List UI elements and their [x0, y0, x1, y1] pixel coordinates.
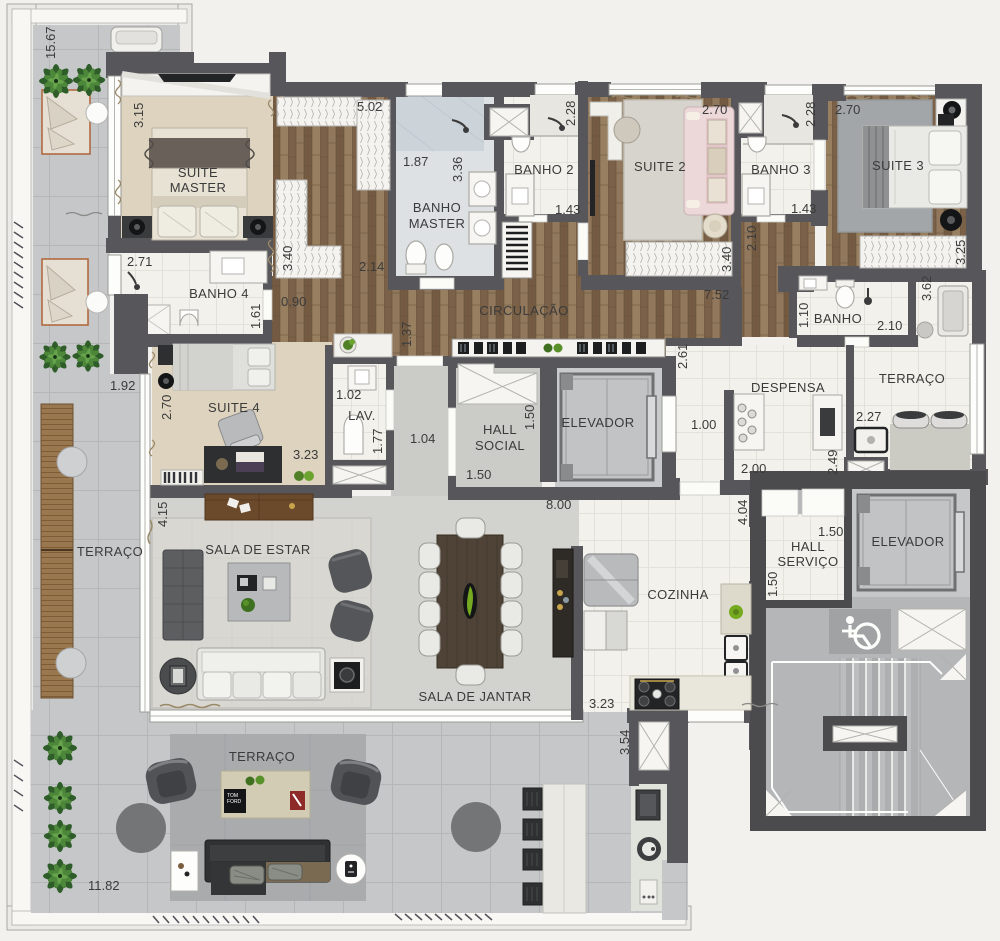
svg-text:1.37: 1.37 — [399, 322, 414, 347]
svg-text:SOCIAL: SOCIAL — [475, 438, 525, 453]
svg-text:COZINHA: COZINHA — [647, 587, 708, 602]
svg-text:2.14: 2.14 — [359, 259, 384, 274]
svg-text:TERRAÇO: TERRAÇO — [77, 544, 143, 559]
svg-text:2.28: 2.28 — [563, 101, 578, 126]
svg-text:1.02: 1.02 — [336, 387, 361, 402]
svg-text:ELEVADOR: ELEVADOR — [871, 534, 944, 549]
svg-text:1.87: 1.87 — [403, 154, 428, 169]
svg-text:3.15: 3.15 — [131, 103, 146, 128]
svg-text:CIRCULAÇÃO: CIRCULAÇÃO — [479, 303, 568, 318]
svg-text:BANHO 2: BANHO 2 — [514, 162, 574, 177]
svg-text:1.43: 1.43 — [555, 202, 580, 217]
svg-text:TERRAÇO: TERRAÇO — [229, 749, 295, 764]
svg-text:2.10: 2.10 — [744, 226, 759, 251]
svg-text:0.90: 0.90 — [281, 294, 306, 309]
svg-text:2.00: 2.00 — [741, 461, 766, 476]
svg-text:2.10: 2.10 — [877, 318, 902, 333]
svg-text:2.70: 2.70 — [159, 395, 174, 420]
svg-text:4.15: 4.15 — [155, 502, 170, 527]
svg-text:1.04: 1.04 — [410, 431, 435, 446]
svg-text:BANHO 4: BANHO 4 — [189, 286, 249, 301]
svg-text:BANHO 3: BANHO 3 — [751, 162, 811, 177]
svg-text:HALL: HALL — [483, 422, 517, 437]
svg-text:3.62: 3.62 — [919, 276, 934, 301]
svg-text:1.10: 1.10 — [796, 303, 811, 328]
svg-text:SUITE: SUITE — [178, 165, 218, 180]
svg-text:SALA DE JANTAR: SALA DE JANTAR — [418, 689, 531, 704]
svg-text:3.54: 3.54 — [617, 730, 632, 755]
svg-text:15.67: 15.67 — [43, 26, 58, 59]
svg-text:3.36: 3.36 — [450, 157, 465, 182]
svg-text:3.23: 3.23 — [589, 696, 614, 711]
svg-text:SUITE 3: SUITE 3 — [872, 158, 924, 173]
svg-text:8.00: 8.00 — [546, 497, 571, 512]
svg-text:HALL: HALL — [791, 539, 825, 554]
svg-text:SERVIÇO: SERVIÇO — [777, 554, 838, 569]
svg-text:1.50: 1.50 — [522, 405, 537, 430]
svg-text:1.77: 1.77 — [370, 429, 385, 454]
svg-text:BANHO: BANHO — [814, 311, 862, 326]
svg-text:1.00: 1.00 — [691, 417, 716, 432]
svg-text:2.61: 2.61 — [675, 344, 690, 369]
svg-text:1.50: 1.50 — [466, 467, 491, 482]
svg-text:LAV.: LAV. — [348, 408, 376, 423]
svg-text:ELEVADOR: ELEVADOR — [561, 415, 634, 430]
svg-text:SUITE 4: SUITE 4 — [208, 400, 260, 415]
svg-text:1.43: 1.43 — [791, 201, 816, 216]
svg-text:3.25: 3.25 — [953, 240, 968, 265]
svg-text:2.70: 2.70 — [702, 102, 727, 117]
svg-text:2.71: 2.71 — [127, 254, 152, 269]
svg-text:DESPENSA: DESPENSA — [751, 380, 825, 395]
svg-text:1.50: 1.50 — [818, 524, 843, 539]
svg-text:4.04: 4.04 — [735, 500, 750, 525]
svg-text:FORD: FORD — [227, 799, 242, 805]
svg-text:SALA DE ESTAR: SALA DE ESTAR — [205, 542, 310, 557]
svg-text:1.50: 1.50 — [765, 572, 780, 597]
svg-text:2.70: 2.70 — [835, 102, 860, 117]
svg-text:SUITE 2: SUITE 2 — [634, 159, 686, 174]
svg-text:2.27: 2.27 — [856, 409, 881, 424]
svg-text:3.23: 3.23 — [293, 447, 318, 462]
svg-text:11.82: 11.82 — [88, 878, 120, 893]
svg-text:2.49: 2.49 — [825, 450, 840, 475]
svg-text:1.92: 1.92 — [110, 378, 135, 393]
svg-text:2.28: 2.28 — [803, 102, 818, 127]
svg-text:MASTER: MASTER — [409, 216, 466, 231]
svg-text:3.40: 3.40 — [280, 246, 295, 271]
svg-text:BANHO: BANHO — [413, 200, 461, 215]
svg-text:5.02: 5.02 — [357, 99, 382, 114]
svg-text:MASTER: MASTER — [170, 180, 227, 195]
svg-text:1.61: 1.61 — [248, 304, 263, 329]
svg-text:3.40: 3.40 — [719, 247, 734, 272]
svg-text:7.52: 7.52 — [704, 287, 729, 302]
svg-text:TERRAÇO: TERRAÇO — [879, 371, 945, 386]
